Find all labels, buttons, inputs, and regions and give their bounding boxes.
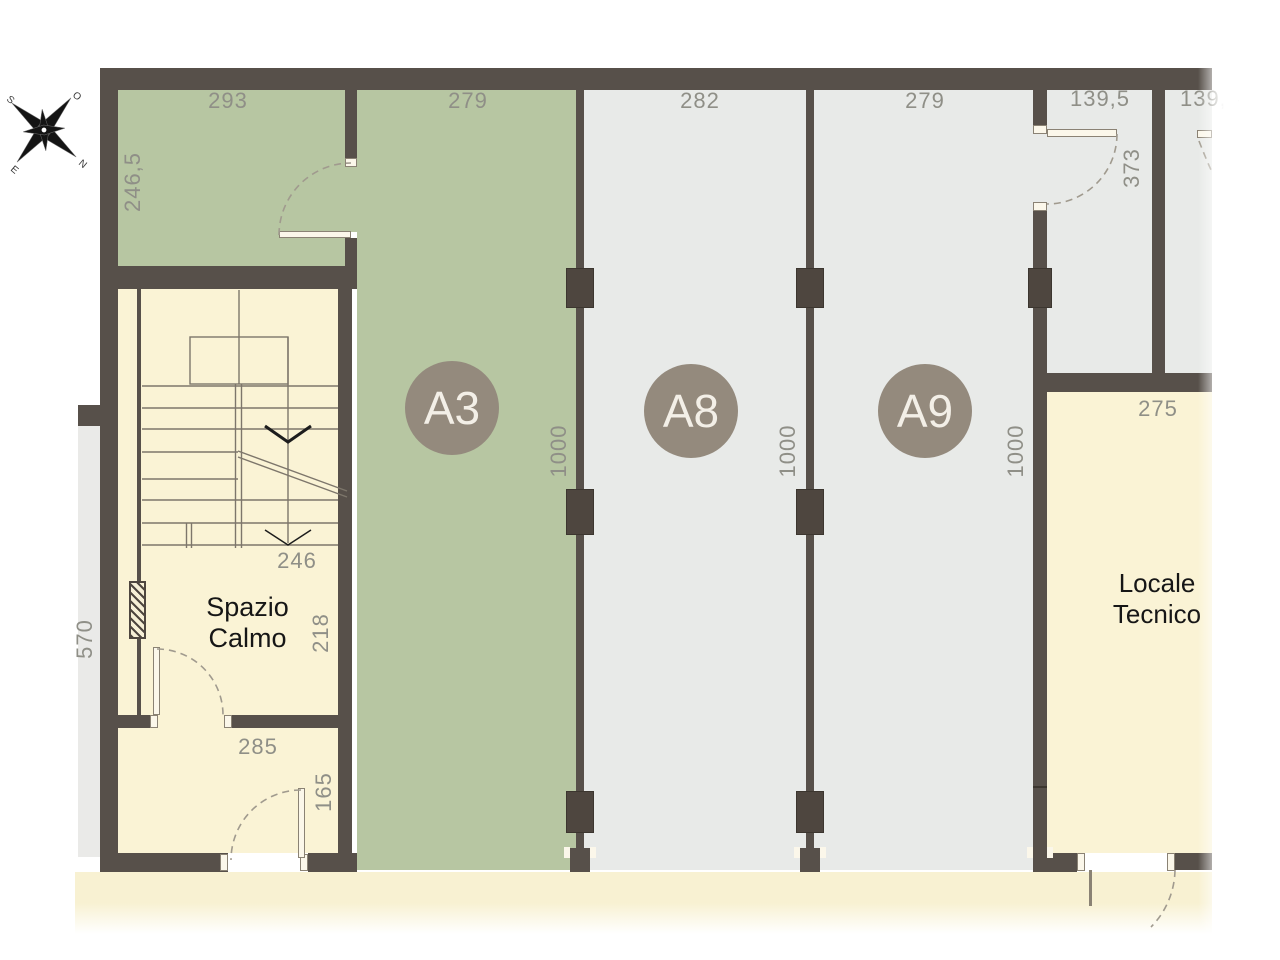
dim-stair-width: 246 xyxy=(247,548,347,574)
unit-label: A3 xyxy=(424,381,480,435)
compass-rose-icon: O N S E xyxy=(0,80,92,184)
dim-locale-width: 275 xyxy=(1108,396,1208,422)
dim-spazio-depth: 218 xyxy=(308,593,334,673)
dim-a3-width: 279 xyxy=(418,88,518,114)
dim-depth-a3: 1000 xyxy=(546,411,572,491)
dim-a8-width: 282 xyxy=(650,88,750,114)
door-arc-corridor xyxy=(1047,134,1117,204)
dim-corridor-width: 139,5 xyxy=(1050,86,1150,112)
plan-linework xyxy=(0,0,1280,960)
stair-break-line xyxy=(238,457,347,497)
dim-depth-a8: 1000 xyxy=(775,411,801,491)
compass-letter-e: E xyxy=(8,164,20,177)
dim-a9-width: 279 xyxy=(875,88,975,114)
door-arc-entry xyxy=(231,790,301,860)
right-edge-fade xyxy=(1198,60,1238,940)
unit-label: A8 xyxy=(663,384,719,438)
compass-letter-n: N xyxy=(76,158,89,171)
floor-plan: O N S E A3 A8 A9 Spazio Calmo Locale Tec… xyxy=(0,0,1280,960)
compass-letter-o: O xyxy=(70,90,83,104)
dim-depth-a9: 1000 xyxy=(1003,411,1029,491)
dim-nw-width: 293 xyxy=(178,88,278,114)
unit-badge-a9: A9 xyxy=(878,364,972,458)
dim-nw-height: 246,5 xyxy=(120,142,146,222)
unit-badge-a3: A3 xyxy=(405,361,499,455)
dim-entry-width: 165 xyxy=(311,752,337,832)
dim-corridor-depth: 373 xyxy=(1119,128,1145,208)
room-label-spazio-calmo: Spazio Calmo xyxy=(190,592,305,654)
door-arc-spazio xyxy=(157,649,223,715)
dim-left-depth: 570 xyxy=(72,599,98,679)
dim-vestibule-width: 285 xyxy=(208,734,308,760)
door-arc-nw xyxy=(279,163,351,235)
door-arc-locale xyxy=(1151,870,1175,927)
unit-badge-a8: A8 xyxy=(644,364,738,458)
stair-break-line xyxy=(238,451,347,491)
unit-label: A9 xyxy=(897,384,953,438)
